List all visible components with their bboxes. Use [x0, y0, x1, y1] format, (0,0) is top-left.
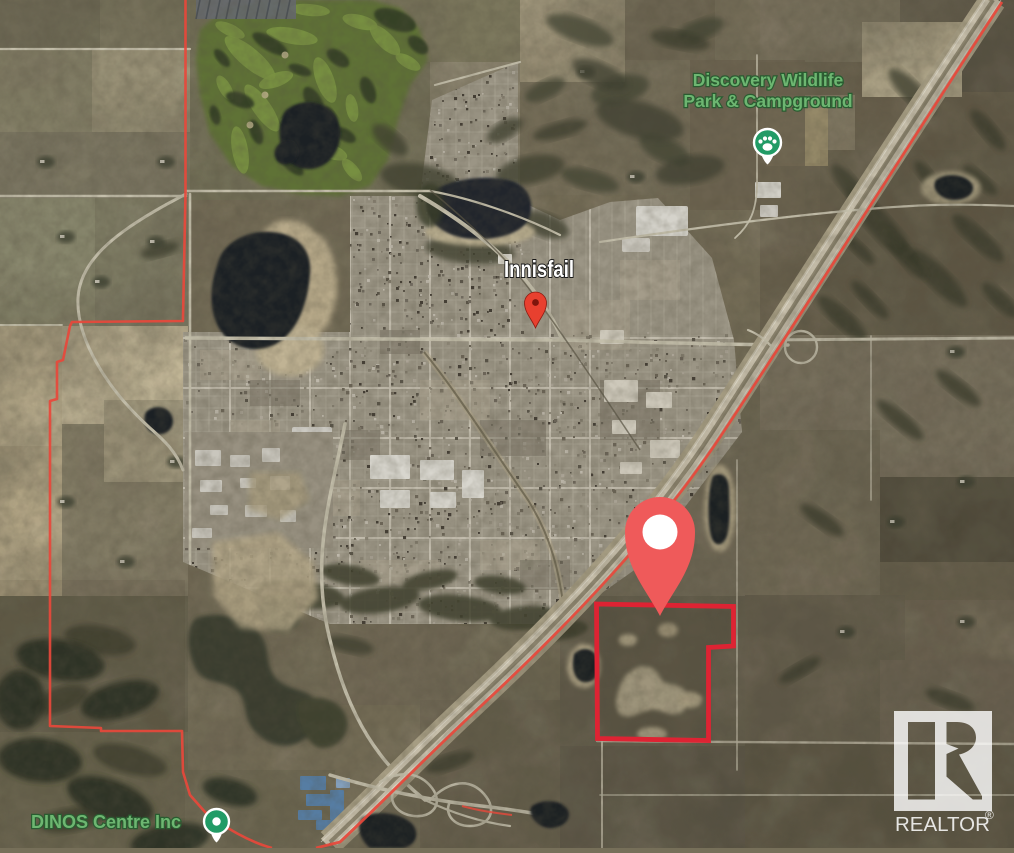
svg-text:REALTOR: REALTOR: [895, 813, 990, 836]
svg-text:Park & Campground: Park & Campground: [683, 91, 852, 111]
svg-text:®: ®: [985, 808, 994, 822]
svg-text:Innisfail: Innisfail: [504, 256, 574, 282]
svg-text:DINOS Centre Inc: DINOS Centre Inc: [31, 812, 181, 832]
svg-text:Discovery Wildlife: Discovery Wildlife: [693, 70, 844, 90]
